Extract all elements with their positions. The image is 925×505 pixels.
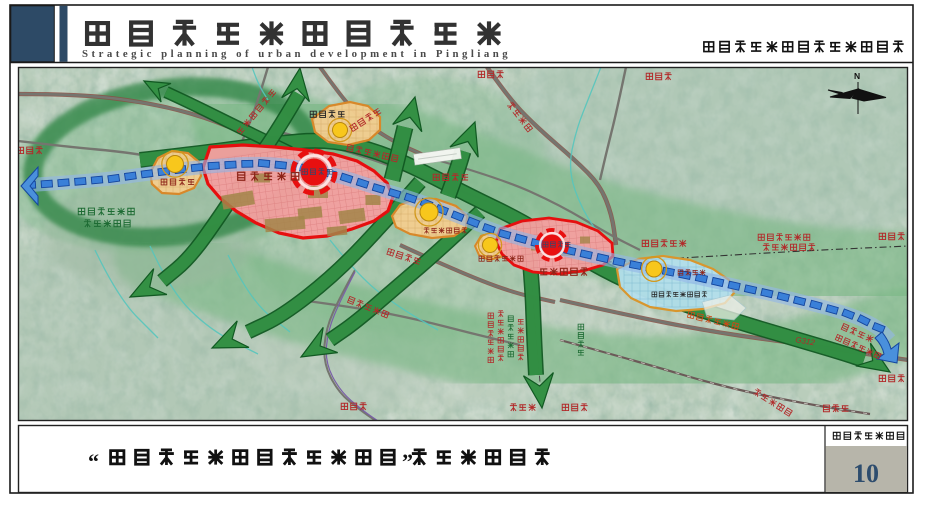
svg-text:10: 10 [853,459,879,488]
svg-text:Strategic planning of urban de: Strategic planning of urban development … [82,48,511,60]
svg-text:“: “ [88,449,99,474]
svg-text:N: N [854,71,860,81]
svg-text:”: ” [402,449,413,474]
